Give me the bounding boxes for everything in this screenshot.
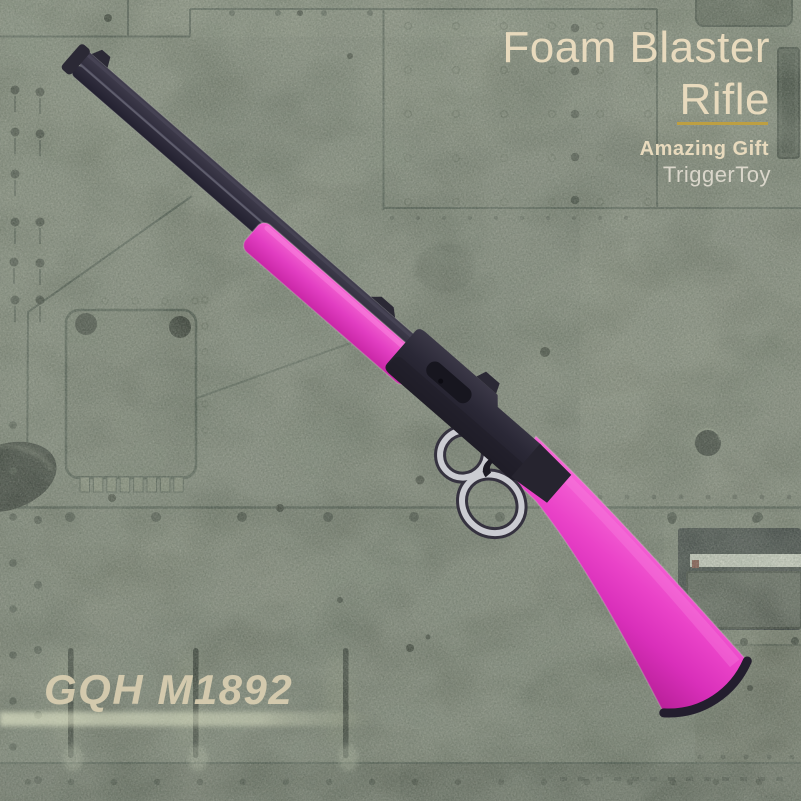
- light-streak: [0, 712, 375, 726]
- title-underline: [677, 122, 768, 125]
- product-image: Foam Blaster Rifle Amazing Gift TriggerT…: [0, 0, 801, 801]
- product-title: Foam Blaster Rifle: [502, 22, 770, 126]
- title-line-2: Rifle: [502, 74, 770, 126]
- model-number: GQH M1892: [44, 666, 293, 714]
- tagline: Amazing Gift: [640, 138, 769, 161]
- brand-name: TriggerToy: [663, 162, 771, 188]
- title-line-1: Foam Blaster: [502, 22, 770, 74]
